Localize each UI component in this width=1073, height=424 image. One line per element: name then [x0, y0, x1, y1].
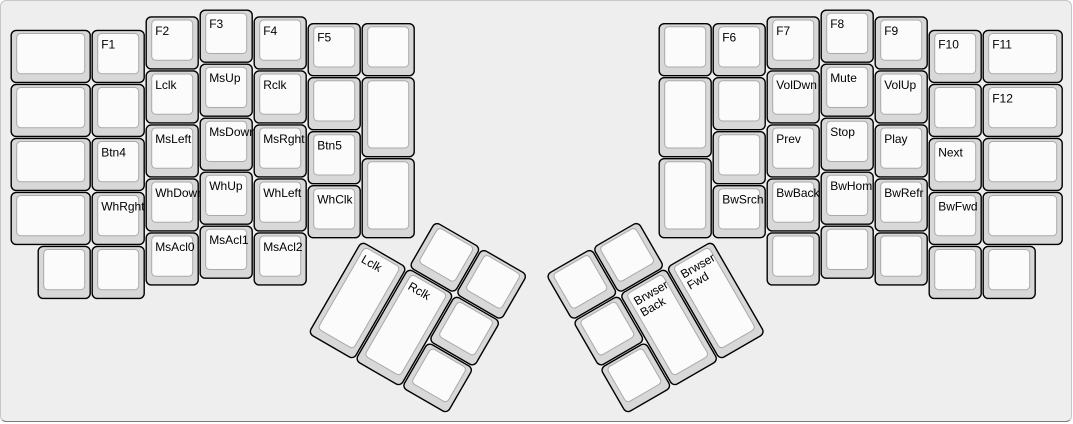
svg-text:F1: F1 — [101, 37, 115, 51]
svg-text:VolDwn: VolDwn — [776, 78, 817, 92]
svg-text:BwSrch: BwSrch — [722, 193, 763, 207]
svg-text:WhRght: WhRght — [101, 199, 145, 213]
svg-text:MsLeft: MsLeft — [155, 132, 192, 146]
svg-text:WhUp: WhUp — [209, 179, 243, 193]
svg-text:F4: F4 — [263, 24, 277, 38]
svg-text:MsDown: MsDown — [209, 125, 256, 139]
svg-text:Next: Next — [938, 145, 963, 159]
svg-text:F3: F3 — [209, 17, 223, 31]
svg-text:BwHom: BwHom — [830, 179, 872, 193]
svg-text:VolUp: VolUp — [884, 78, 916, 92]
svg-text:MsUp: MsUp — [209, 71, 241, 85]
svg-text:Btn4: Btn4 — [101, 145, 126, 159]
svg-text:MsAcl0: MsAcl0 — [155, 240, 195, 254]
svg-text:F12: F12 — [992, 91, 1013, 105]
svg-text:F6: F6 — [722, 31, 736, 45]
svg-text:Prev: Prev — [776, 132, 801, 146]
svg-text:Play: Play — [884, 132, 907, 146]
svg-text:MsAcl2: MsAcl2 — [263, 240, 303, 254]
svg-text:MsAcl1: MsAcl1 — [209, 233, 249, 247]
svg-text:F11: F11 — [992, 37, 1012, 51]
svg-text:WhLeft: WhLeft — [263, 186, 302, 200]
svg-text:Stop: Stop — [830, 125, 855, 139]
svg-text:BwFwd: BwFwd — [938, 199, 977, 213]
svg-text:F8: F8 — [830, 17, 844, 31]
svg-text:F9: F9 — [884, 24, 898, 38]
svg-text:WhDown: WhDown — [155, 186, 204, 200]
svg-text:BwBack: BwBack — [776, 186, 820, 200]
svg-text:MsRght: MsRght — [263, 132, 305, 146]
svg-text:F5: F5 — [317, 31, 331, 45]
svg-text:F7: F7 — [776, 24, 790, 38]
svg-text:Mute: Mute — [830, 71, 857, 85]
svg-text:Rclk: Rclk — [263, 78, 287, 92]
svg-text:Lclk: Lclk — [155, 78, 177, 92]
svg-text:WhClk: WhClk — [317, 193, 353, 207]
svg-text:F10: F10 — [938, 37, 959, 51]
svg-text:Btn5: Btn5 — [317, 139, 342, 153]
svg-text:BwRefr: BwRefr — [884, 186, 923, 200]
svg-text:F2: F2 — [155, 24, 169, 38]
